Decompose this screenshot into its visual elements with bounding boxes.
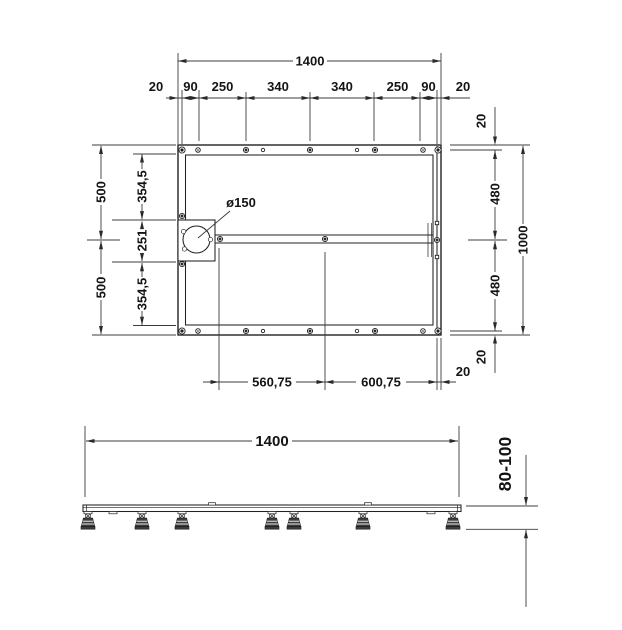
dim-560-label: 560,75 [252,375,292,390]
technical-drawing-page: 1400 20 90 250 340 340 250 90 20 500 500… [0,0,622,630]
drain-diameter-label: ø150 [226,195,256,210]
dim-354-upper-label: 354,5 [135,170,150,203]
dim-seg-20-right-label: 20 [456,79,470,94]
dim-20-bottom-edge-label: 20 [456,364,470,379]
dim-seg-250-right-label: 250 [387,79,409,94]
dim-seg-340-left-label: 340 [267,79,289,94]
dim-480-upper-label: 480 [488,183,503,205]
dim-480-lower-label: 480 [488,275,503,297]
dim-seg-250-left-label: 250 [212,79,234,94]
dim-354-lower-label: 354,5 [135,278,150,311]
dim-500-upper-label: 500 [94,181,109,203]
dim-seg-340-right-label: 340 [331,79,353,94]
dim-seg-90-left-label: 90 [183,79,197,94]
shower-tray-frame-drawing: 1400 20 90 250 340 340 250 90 20 500 500… [0,0,622,630]
dim-20-right-bottom-label: 20 [474,350,489,364]
adjustable-feet [81,512,460,530]
dim-seg-90-right-label: 90 [421,79,435,94]
dim-20-right-top-label: 20 [474,114,489,128]
dim-total-width-label: 1400 [296,54,325,69]
elevation-width-label: 1400 [255,433,288,450]
dim-500-lower-label: 500 [94,277,109,299]
frame-bar [83,505,461,512]
frame-screws [179,147,441,334]
elevation-view [81,426,538,607]
elevation-height-label: 80-100 [495,436,515,491]
plan-bottom-dimensions [203,248,456,390]
dim-seg-20-left-label: 20 [149,79,163,94]
dim-600-label: 600,75 [361,375,401,390]
plan-left-dimensions [87,145,176,335]
dim-251-label: 251 [135,230,150,252]
dimension-labels: 1400 20 90 250 340 340 250 90 20 500 500… [94,54,531,492]
dim-total-height-label: 1000 [516,226,531,255]
